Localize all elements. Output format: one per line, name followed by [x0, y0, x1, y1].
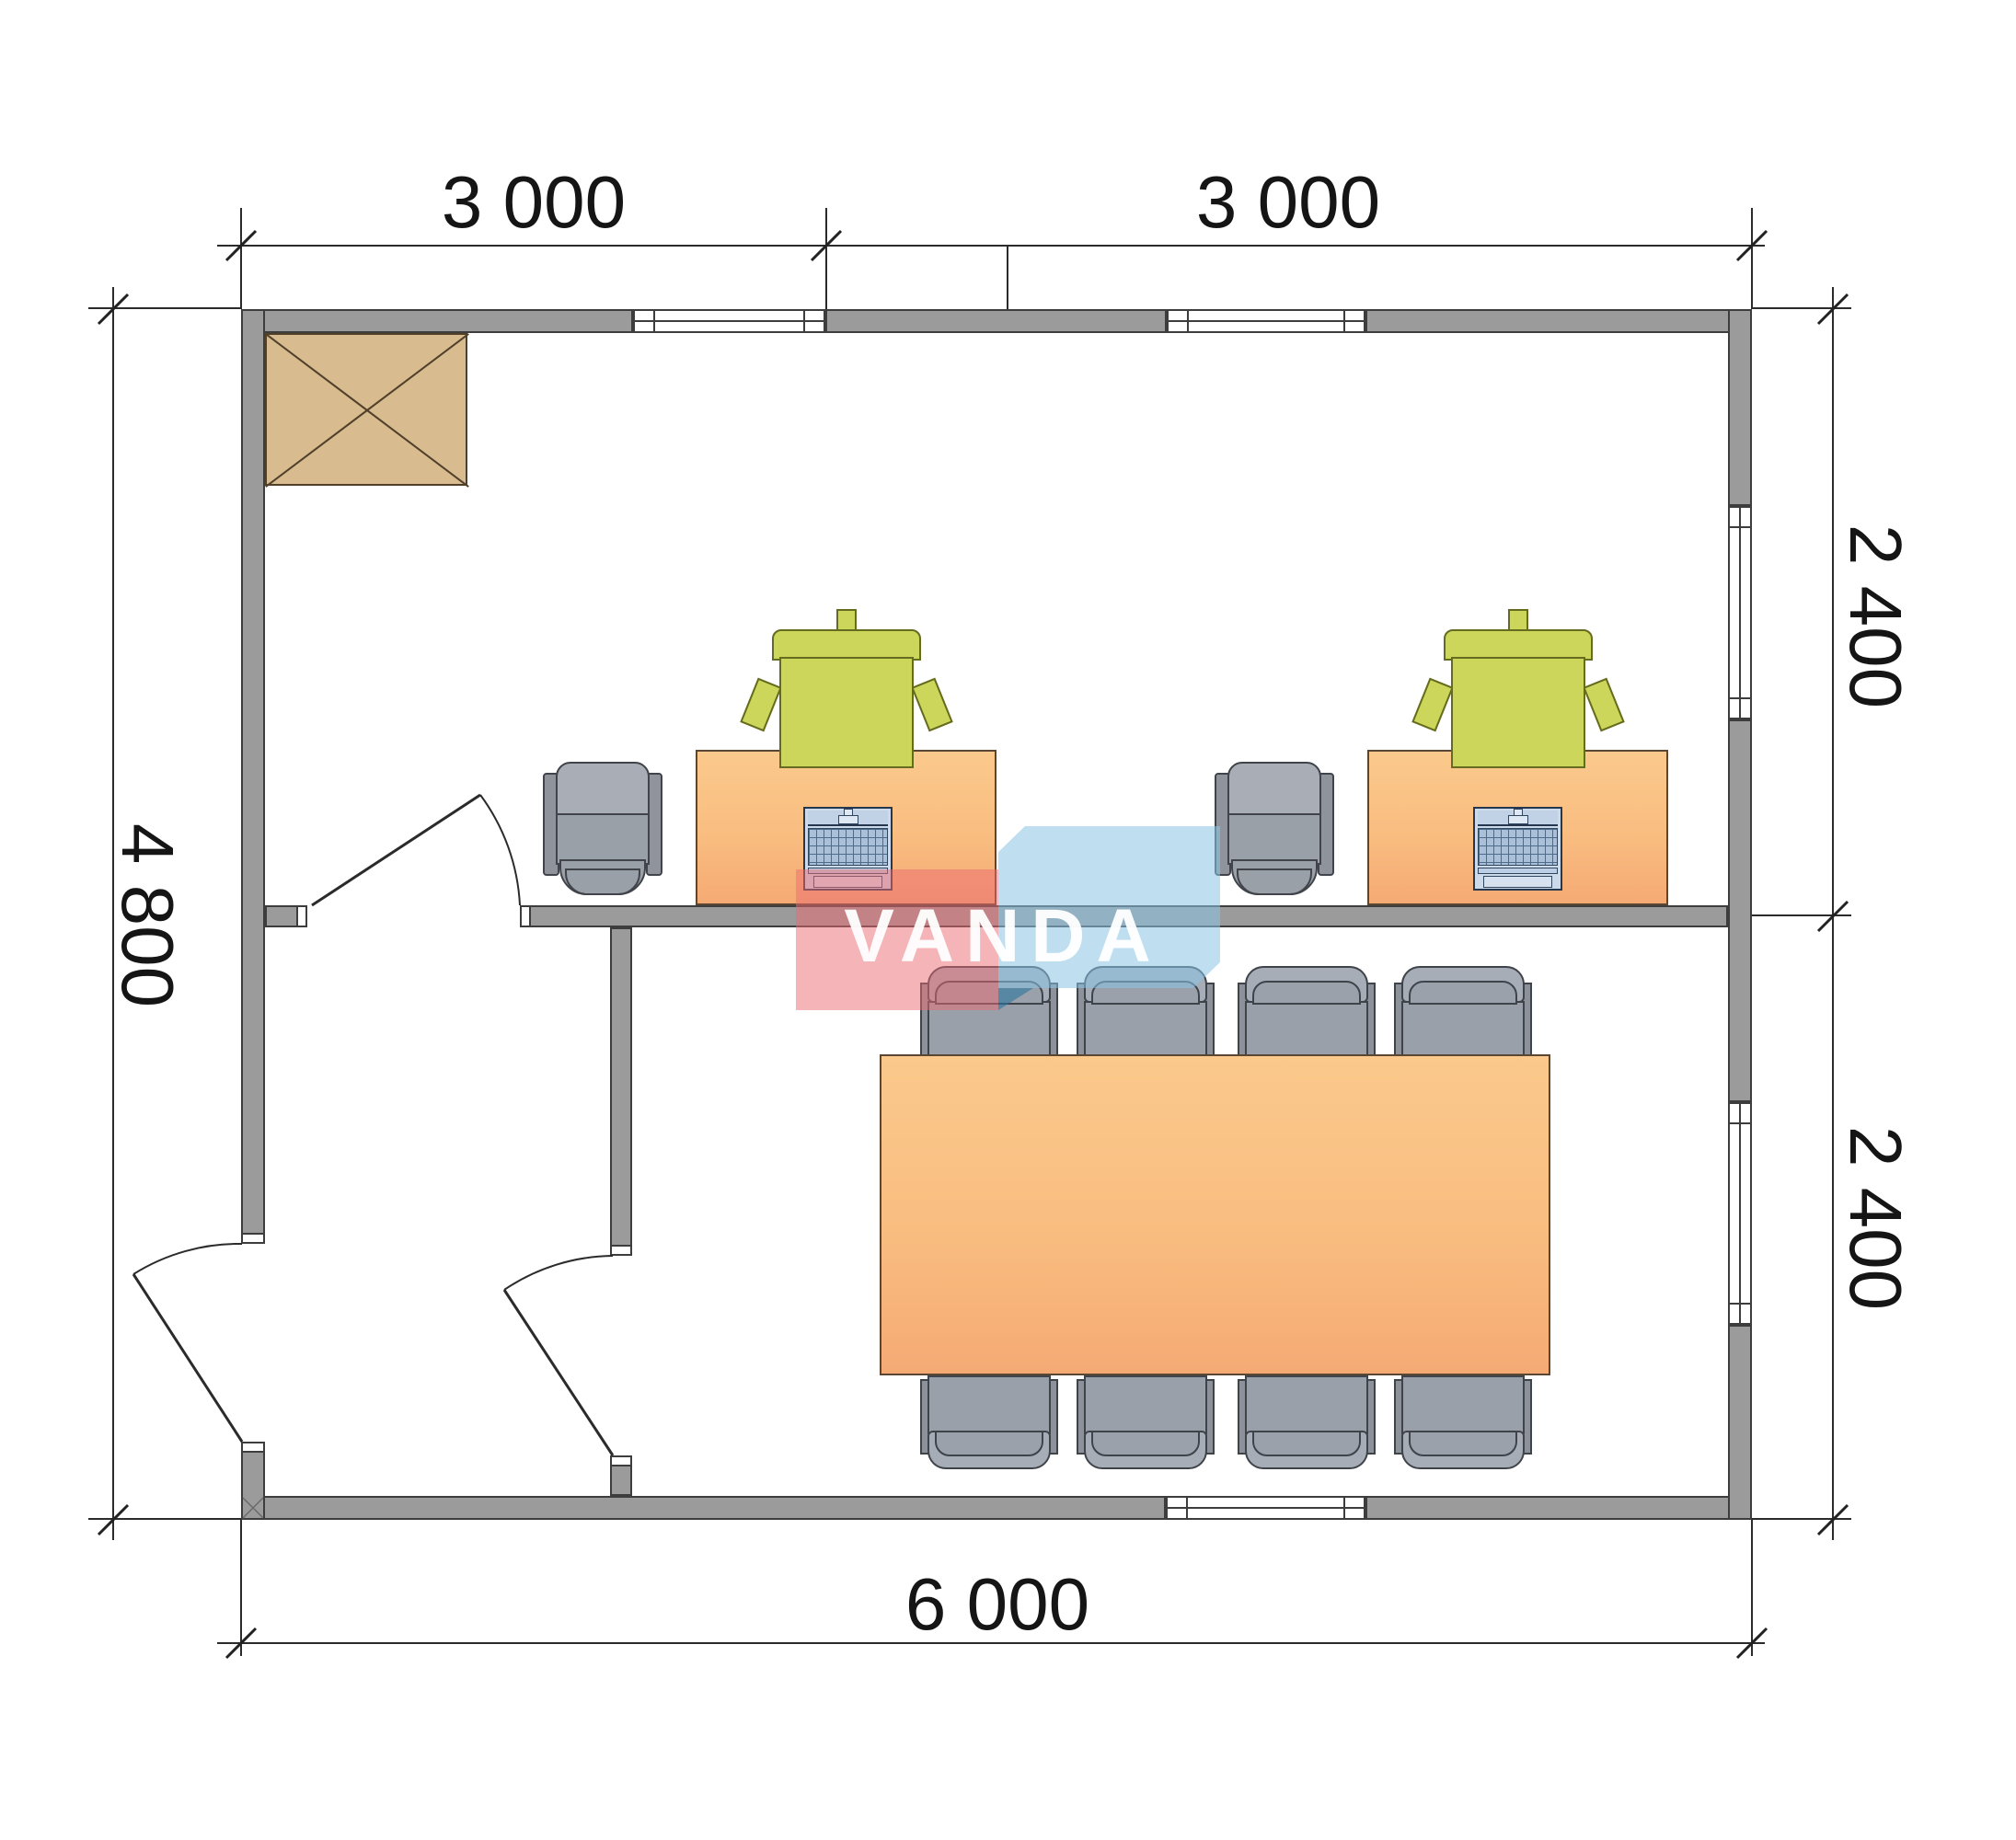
- dim-tick: [98, 294, 128, 324]
- dim-tick: [98, 1505, 128, 1535]
- dim-tick: [1818, 1505, 1848, 1535]
- dim-tick: [1737, 1628, 1767, 1658]
- logo-wordmark: VANDA: [844, 893, 1161, 980]
- dim-tick: [1737, 231, 1767, 260]
- interior-door-v-arc: [504, 1256, 613, 1290]
- floor-plan-canvas: 3 000 3 000 4 800 2 400 2 400 6 000: [0, 0, 2016, 1840]
- dim-tick: [226, 1628, 256, 1658]
- entrance-door-arc: [133, 1244, 242, 1274]
- interior-door-h-leaf: [312, 795, 480, 905]
- dim-tick: [226, 231, 256, 260]
- interior-door-v-leaf: [504, 1290, 613, 1455]
- dim-tick: [812, 231, 841, 260]
- entrance-door-leaf: [133, 1274, 242, 1442]
- dim-tick: [1818, 294, 1848, 324]
- dim-tick: [1818, 902, 1848, 931]
- interior-door-h-arc: [480, 795, 520, 905]
